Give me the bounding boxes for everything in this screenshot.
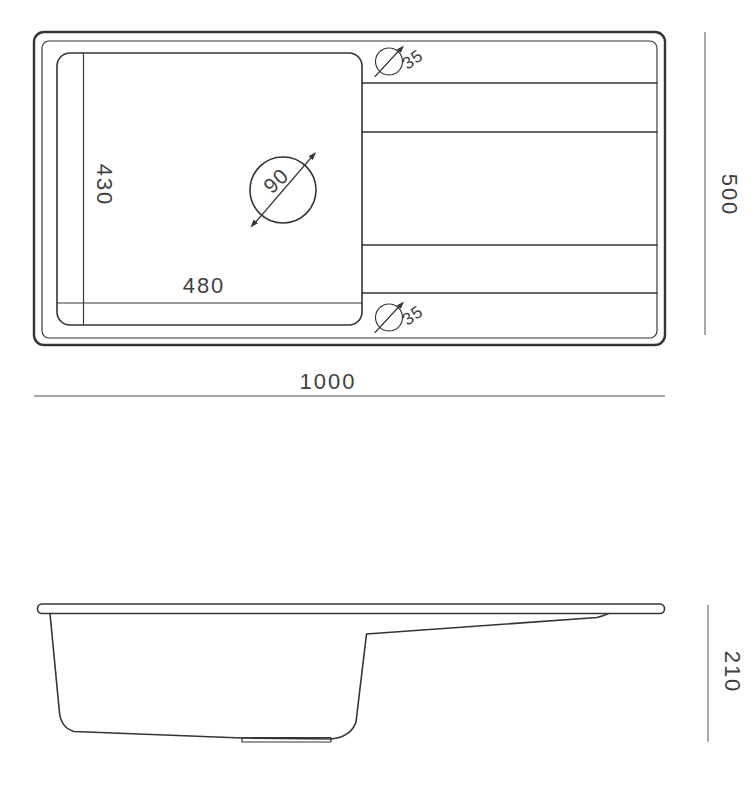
top-view: 90 35 35 430 480 bbox=[34, 32, 665, 345]
sink-technical-drawing: 90 35 35 430 480 1000 bbox=[0, 0, 755, 800]
tap-hole-top-symbol: 35 bbox=[375, 46, 427, 77]
tap-hole-bottom-symbol: 35 bbox=[375, 302, 427, 333]
tap-hole-top-label: 35 bbox=[399, 46, 427, 74]
bowl-depth-label: 430 bbox=[92, 164, 117, 207]
side-profile-outline bbox=[50, 614, 608, 740]
side-flange-outline bbox=[38, 604, 665, 614]
drain-diameter-label: 90 bbox=[259, 163, 293, 197]
side-view bbox=[38, 604, 665, 742]
sink-outer-edge bbox=[34, 32, 665, 345]
tap-hole-bottom-label: 35 bbox=[399, 302, 427, 330]
overall-width-label: 1000 bbox=[300, 369, 357, 394]
sink-drawing-svg: 90 35 35 430 480 1000 bbox=[0, 0, 755, 800]
drain-diameter-slash bbox=[254, 156, 313, 225]
side-height-label: 210 bbox=[720, 651, 745, 694]
overall-depth-label: 500 bbox=[717, 174, 742, 217]
dimension-annotations: 1000 500 210 bbox=[34, 32, 745, 742]
bowl-width-label: 480 bbox=[183, 273, 226, 298]
drainboard-grooves bbox=[362, 83, 657, 293]
drain-hole-symbol: 90 bbox=[250, 152, 316, 228]
